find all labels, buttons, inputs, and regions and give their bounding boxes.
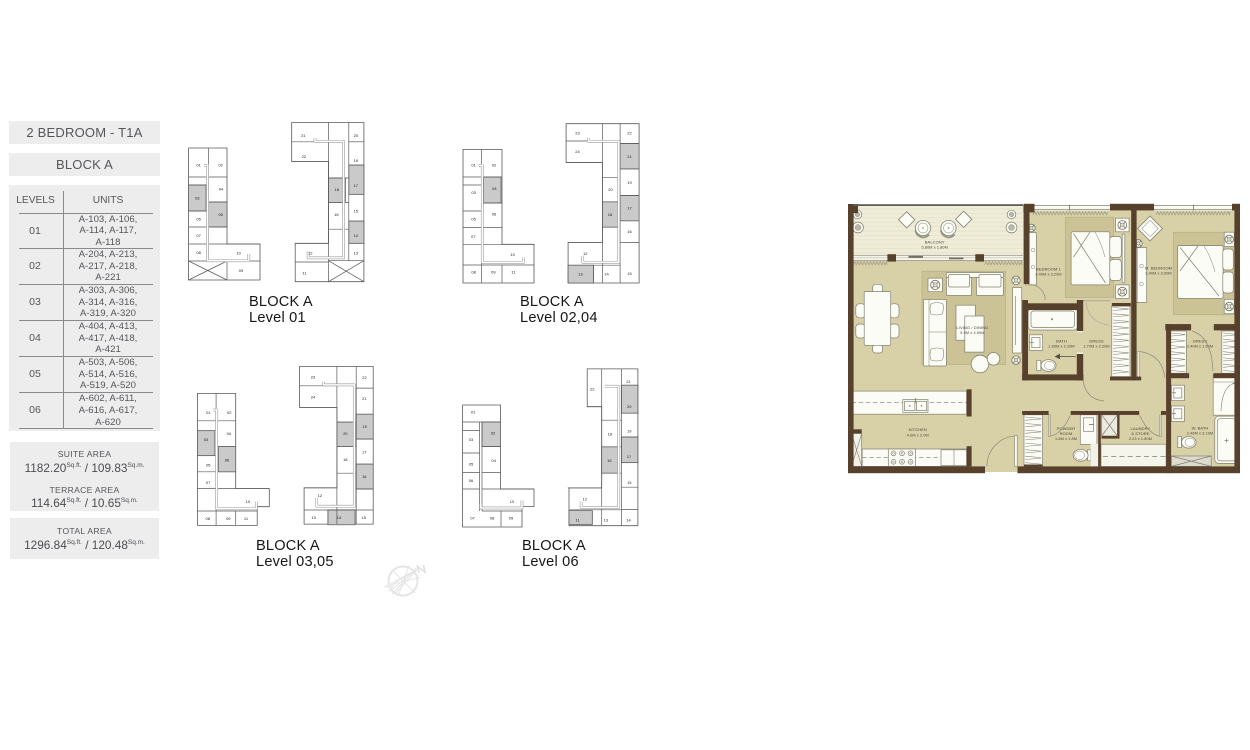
svg-text:01: 01 [471,163,476,168]
svg-text:08: 08 [196,250,201,255]
svg-text:4.0M x 2.0M: 4.0M x 2.0M [907,433,929,437]
svg-text:08: 08 [490,516,495,521]
svg-text:15: 15 [627,480,632,485]
svg-text:05: 05 [196,217,201,222]
svg-text:17: 17 [627,454,632,459]
svg-text:16: 16 [627,229,632,234]
svg-text:12: 12 [308,251,313,256]
svg-text:23: 23 [311,375,316,380]
svg-text:15: 15 [354,209,359,214]
svg-text:20: 20 [608,187,613,192]
svg-text:2.40M x 1.60M: 2.40M x 1.60M [1187,344,1213,348]
svg-text:2.23 x 1.80M: 2.23 x 1.80M [1129,437,1152,441]
svg-text:03: 03 [204,437,209,442]
svg-text:20: 20 [354,133,359,138]
svg-text:05: 05 [206,462,211,467]
svg-text:3.40M x 3.90M: 3.40M x 3.90M [1145,272,1171,276]
svg-text:ROOM: ROOM [1060,431,1073,436]
svg-text:1.8M x 1.8M: 1.8M x 1.8M [1055,437,1077,441]
svg-text:08: 08 [205,516,210,521]
svg-text:13: 13 [354,251,359,256]
svg-text:16: 16 [362,474,367,479]
svg-text:02: 02 [492,163,497,168]
svg-text:18: 18 [608,431,613,436]
svg-text:02: 02 [227,410,232,415]
svg-text:19: 19 [362,424,367,429]
svg-text:24: 24 [575,149,580,154]
svg-text:16: 16 [334,212,339,217]
svg-text:10: 10 [236,251,241,256]
svg-text:06: 06 [218,212,223,217]
svg-text:W. BATH: W. BATH [1192,425,1209,430]
svg-text:14: 14 [604,272,609,277]
svg-text:19: 19 [354,158,359,163]
svg-text:M. BEDROOM: M. BEDROOM [1145,266,1172,271]
svg-text:21: 21 [626,379,631,384]
svg-text:BALCONY: BALCONY [925,240,945,245]
svg-text:04: 04 [492,186,497,191]
svg-text:10: 10 [246,499,251,504]
svg-text:18: 18 [334,187,339,192]
svg-text:2.46M x 3.10M: 2.46M x 3.10M [1187,431,1213,435]
svg-text:19: 19 [627,429,632,434]
svg-text:22: 22 [362,375,367,380]
svg-text:5.80M x 1.80M: 5.80M x 1.80M [921,246,947,250]
svg-text:06: 06 [225,458,230,463]
svg-text:04: 04 [227,431,232,436]
svg-text:13: 13 [311,515,316,520]
svg-text:02: 02 [218,163,223,168]
svg-text:01: 01 [471,409,476,414]
svg-text:14: 14 [354,233,359,238]
svg-text:20: 20 [627,404,632,409]
svg-text:09: 09 [226,516,231,521]
svg-text:09: 09 [509,516,514,521]
svg-text:07: 07 [471,234,476,239]
svg-text:14: 14 [626,518,631,523]
svg-text:10: 10 [510,252,515,257]
svg-text:22: 22 [302,154,307,159]
svg-text:12: 12 [583,497,588,502]
svg-text:10: 10 [510,499,515,504]
svg-text:08: 08 [471,270,476,275]
svg-text:3.40M x 3.20M: 3.40M x 3.20M [1035,272,1061,276]
svg-text:05: 05 [469,462,474,467]
svg-text:13: 13 [578,272,583,277]
svg-text:& STORE: & STORE [1131,431,1149,436]
svg-text:06: 06 [492,212,497,217]
svg-text:01: 01 [206,410,211,415]
svg-text:16: 16 [607,458,612,463]
svg-text:12: 12 [583,251,588,256]
svg-text:18: 18 [343,457,348,462]
svg-text:04: 04 [219,187,224,192]
svg-text:17: 17 [362,450,367,455]
svg-text:BATH: BATH [1056,338,1067,343]
svg-text:23: 23 [575,131,580,136]
svg-text:15: 15 [361,515,366,520]
svg-text:07: 07 [470,516,475,521]
svg-text:07: 07 [206,480,211,485]
svg-text:LIVING / DINING: LIVING / DINING [956,325,988,330]
svg-text:BEDROOM 1: BEDROOM 1 [1036,266,1062,271]
svg-text:KITCHEN: KITCHEN [909,427,927,432]
svg-text:22: 22 [590,387,595,392]
svg-text:15: 15 [627,271,632,276]
svg-text:17: 17 [627,206,632,211]
svg-text:17: 17 [354,183,359,188]
svg-text:DRESS: DRESS [1089,338,1104,343]
svg-text:03: 03 [469,437,474,442]
svg-text:24: 24 [311,395,316,400]
svg-text:21: 21 [627,154,632,159]
svg-text:01: 01 [196,163,201,168]
svg-text:21: 21 [362,396,367,401]
svg-text:18: 18 [608,212,613,217]
svg-text:13: 13 [603,518,608,523]
svg-text:07: 07 [196,233,201,238]
svg-text:5.9M x 4.69M: 5.9M x 4.69M [960,331,984,335]
svg-text:1.70M x 2.20M: 1.70M x 2.20M [1083,344,1109,348]
svg-text:09: 09 [491,270,496,275]
svg-text:20: 20 [343,431,348,436]
svg-text:04: 04 [491,458,496,463]
svg-text:12: 12 [318,493,323,498]
svg-text:02: 02 [491,430,496,435]
svg-text:19: 19 [627,180,632,185]
svg-text:09: 09 [239,268,244,273]
svg-text:21: 21 [301,133,306,138]
svg-text:14: 14 [337,515,342,520]
svg-text:03: 03 [195,196,200,201]
svg-text:03: 03 [471,190,476,195]
svg-text:05: 05 [471,217,476,222]
svg-text:1.60M x 2.20M: 1.60M x 2.20M [1048,344,1074,348]
svg-text:06: 06 [469,478,474,483]
svg-text:22: 22 [627,131,632,136]
